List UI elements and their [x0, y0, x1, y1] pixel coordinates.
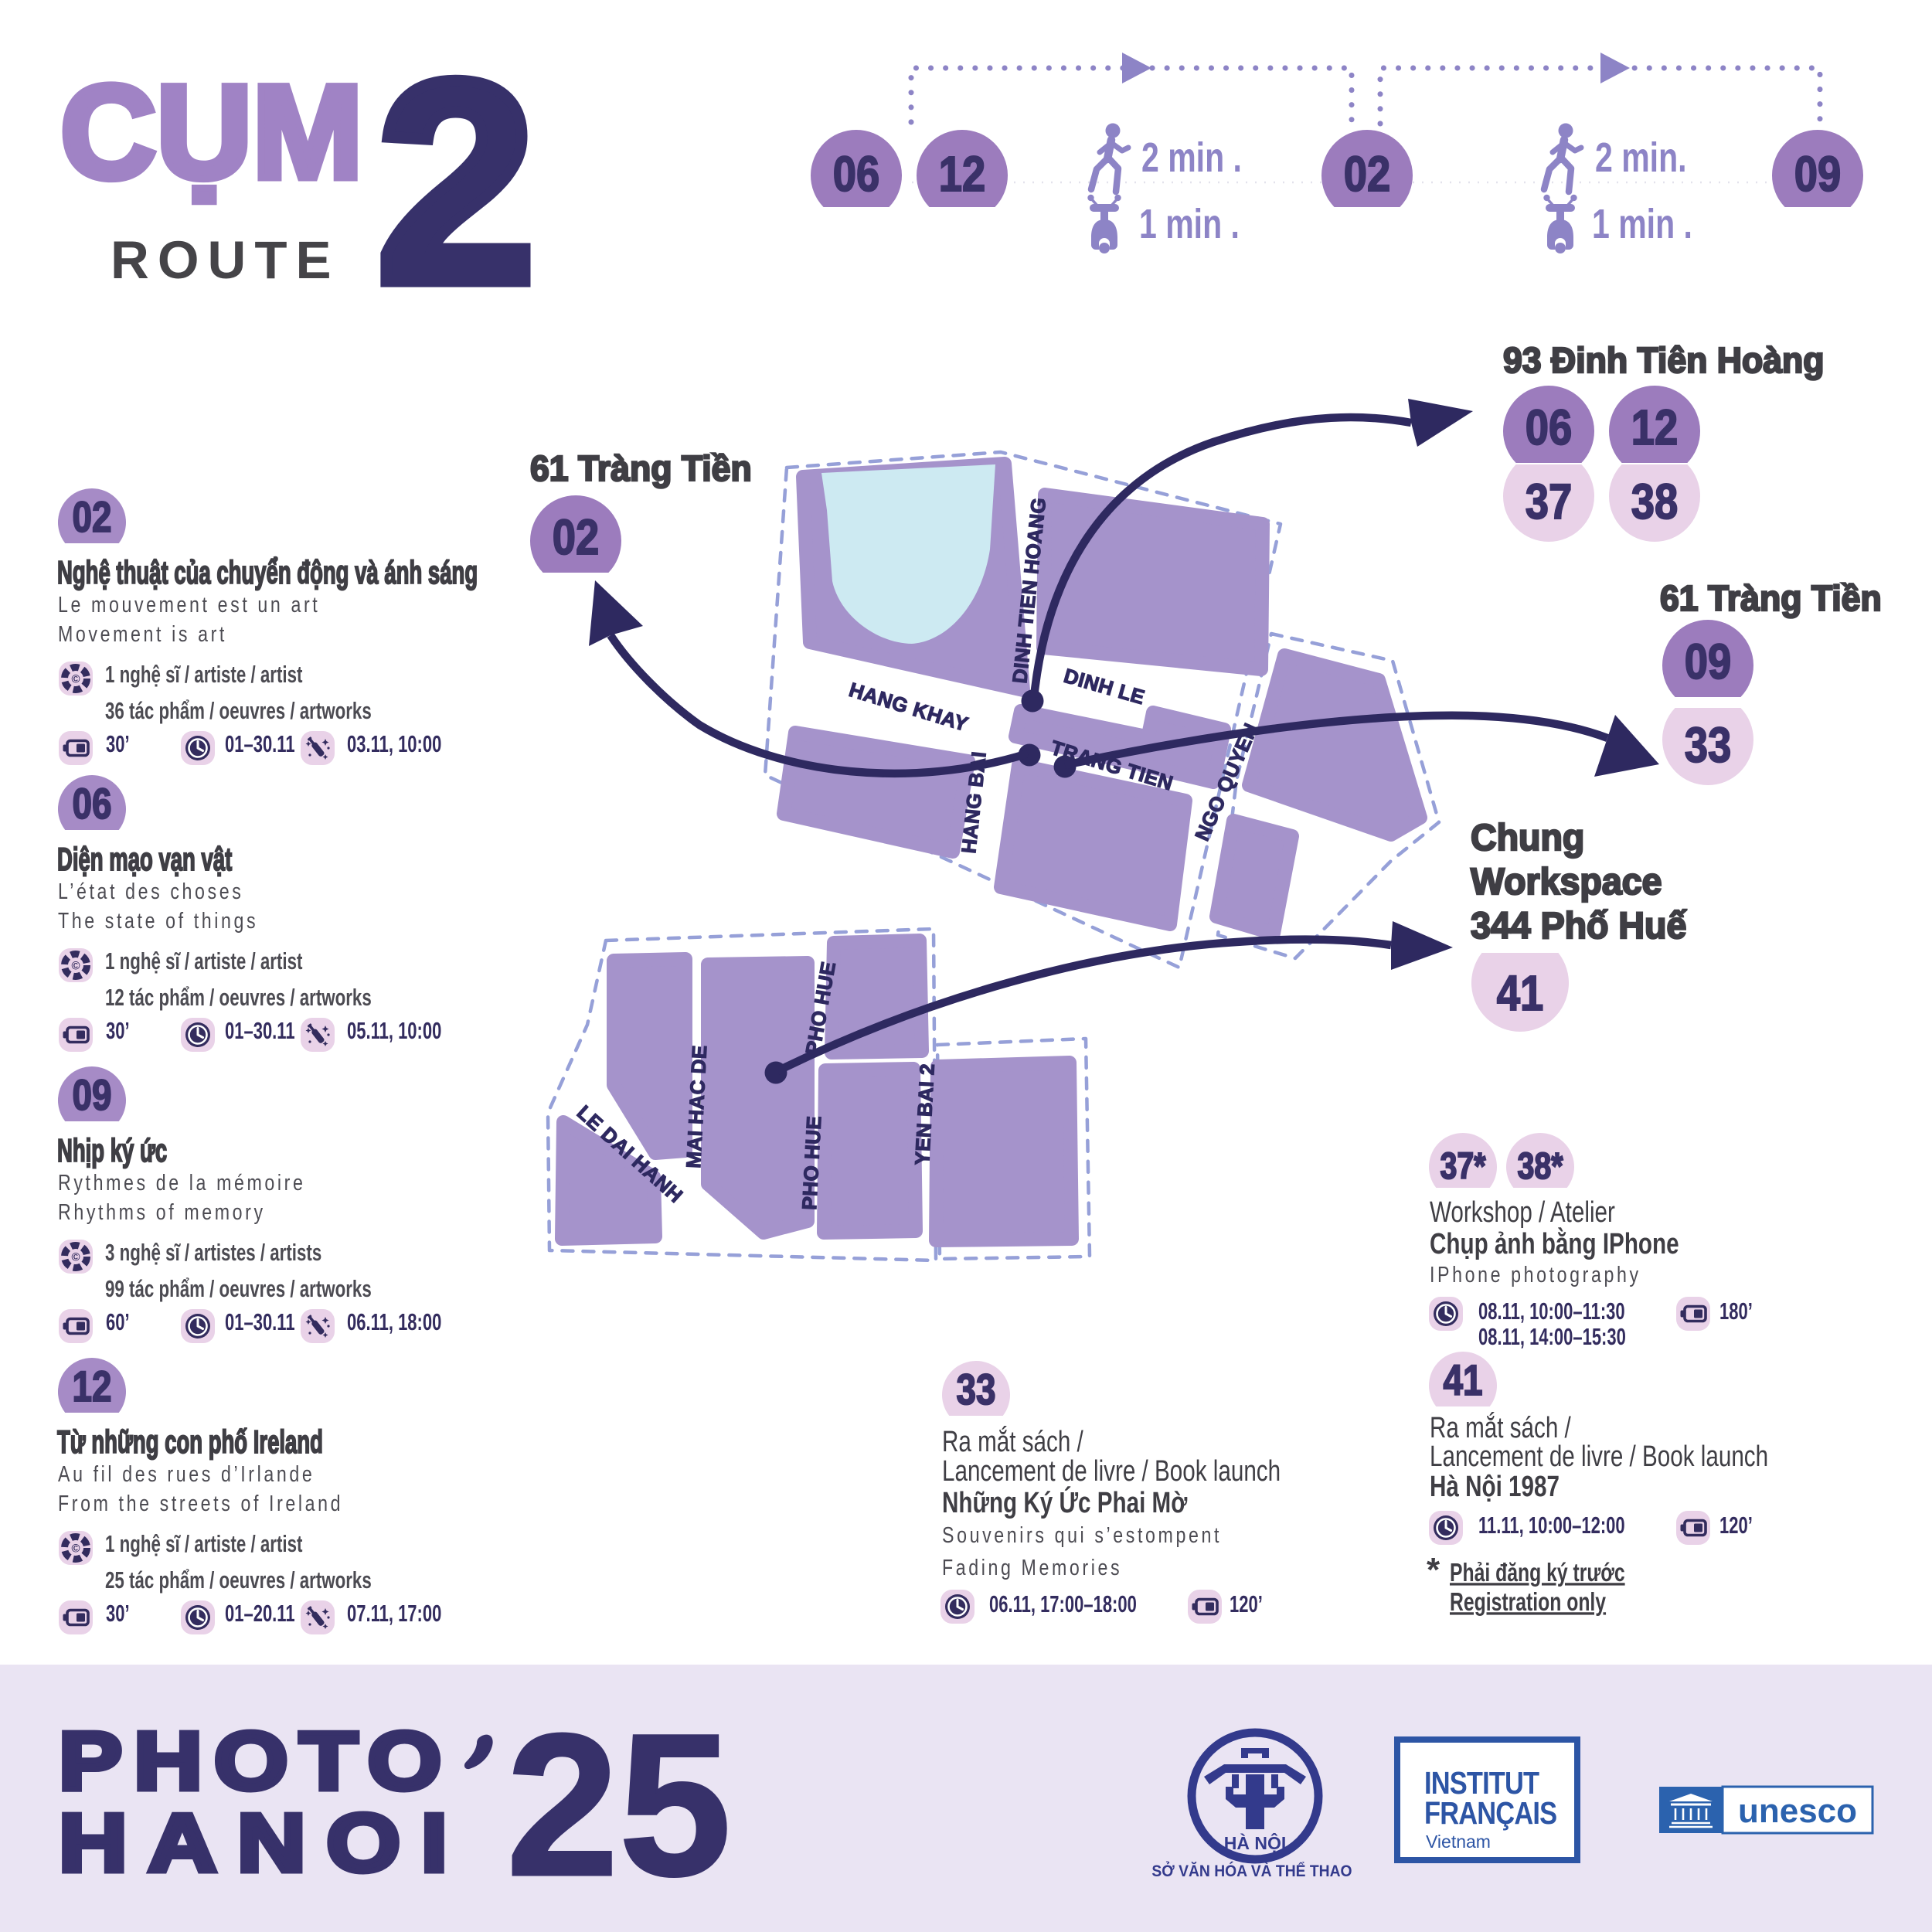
- svg-text:30’: 30’: [106, 730, 130, 757]
- svg-text:Ra mắt sách /: Ra mắt sách /: [942, 1426, 1083, 1458]
- svg-text:ROUTE: ROUTE: [111, 230, 340, 290]
- svg-text:61 Tràng Tiền: 61 Tràng Tiền: [530, 448, 752, 488]
- svg-text:Fading Memories: Fading Memories: [942, 1554, 1122, 1580]
- svg-text:30’: 30’: [106, 1017, 130, 1044]
- svg-text:41: 41: [1497, 965, 1543, 1021]
- svg-text:33: 33: [1685, 717, 1731, 773]
- svg-text:Movement is art: Movement is art: [58, 621, 227, 646]
- svg-text:07.11, 17:00: 07.11, 17:00: [347, 1600, 441, 1627]
- svg-text:37*: 37*: [1440, 1145, 1486, 1187]
- svg-text:06: 06: [72, 780, 111, 828]
- svg-text:Workshop / Atelier: Workshop / Atelier: [1430, 1196, 1615, 1229]
- svg-text:The state of things: The state of things: [58, 907, 258, 933]
- svg-text:08.11, 10:00–11:30: 08.11, 10:00–11:30: [1478, 1298, 1625, 1325]
- svg-text:120’: 120’: [1719, 1512, 1753, 1539]
- svg-text:01–30.11: 01–30.11: [225, 1017, 295, 1044]
- svg-text:06.11, 18:00: 06.11, 18:00: [347, 1308, 441, 1335]
- svg-text:12: 12: [1631, 400, 1678, 455]
- svg-text:Những Ký Ức Phai Mờ: Những Ký Ức Phai Mờ: [942, 1487, 1188, 1519]
- svg-text:SỞ VĂN HÓA VÀ THỂ THAO: SỞ VĂN HÓA VÀ THỂ THAO: [1151, 1861, 1352, 1880]
- svg-text:Vietnam: Vietnam: [1426, 1832, 1491, 1852]
- svg-text:From the streets of Ireland: From the streets of Ireland: [58, 1490, 343, 1515]
- svg-text:12: 12: [939, 146, 985, 202]
- svg-text:3 nghệ sĩ / artistes / artists: 3 nghệ sĩ / artistes / artists: [105, 1239, 321, 1265]
- svg-text:Chung: Chung: [1471, 817, 1584, 859]
- svg-text:33: 33: [956, 1366, 995, 1413]
- svg-text:unesco: unesco: [1738, 1792, 1857, 1830]
- svg-text:DINH LE: DINH LE: [1061, 664, 1148, 709]
- svg-text:344 Phố Huế: 344 Phố Huế: [1471, 905, 1687, 947]
- svg-text:01–30.11: 01–30.11: [225, 1308, 295, 1335]
- svg-text:IPhone photography: IPhone photography: [1430, 1261, 1641, 1287]
- svg-text:37: 37: [1526, 474, 1572, 529]
- svg-text:PHOTO: PHOTO: [59, 1716, 453, 1807]
- svg-text:PHO HUE: PHO HUE: [798, 1115, 825, 1210]
- svg-text:01–30.11: 01–30.11: [225, 730, 295, 757]
- svg-text:Souvenirs qui s’estompent: Souvenirs qui s’estompent: [942, 1522, 1222, 1547]
- svg-text:Chụp ảnh bằng IPhone: Chụp ảnh bằng IPhone: [1430, 1228, 1679, 1260]
- svg-text:Diện mạo vạn vật: Diện mạo vạn vật: [57, 841, 232, 877]
- svg-text:HANOI: HANOI: [59, 1798, 468, 1889]
- svg-text:08.11, 14:00–15:30: 08.11, 14:00–15:30: [1478, 1323, 1626, 1350]
- svg-text:1 min .: 1 min .: [1139, 202, 1240, 248]
- svg-text:12 tác phẩm / oeuvres / artwor: 12 tác phẩm / oeuvres / artworks: [105, 984, 372, 1010]
- svg-text:Le mouvement est un art: Le mouvement est un art: [58, 591, 320, 617]
- svg-text:Lancement de livre / Book laun: Lancement de livre / Book launch: [942, 1455, 1281, 1488]
- svg-text:01–20.11: 01–20.11: [225, 1600, 295, 1627]
- svg-text:38: 38: [1631, 474, 1678, 529]
- svg-text:02: 02: [553, 509, 599, 565]
- svg-text:HÀ NỘI: HÀ NỘI: [1224, 1832, 1287, 1853]
- svg-text:Registration only: Registration only: [1450, 1589, 1607, 1617]
- svg-text:Nhịp ký ức: Nhịp ký ức: [57, 1132, 167, 1168]
- svg-text:2: 2: [376, 21, 536, 342]
- svg-text:05.11, 10:00: 05.11, 10:00: [347, 1017, 441, 1044]
- svg-text:93 Đinh Tiên Hoàng: 93 Đinh Tiên Hoàng: [1503, 340, 1825, 380]
- svg-text:09: 09: [1794, 146, 1841, 202]
- svg-text:Nghệ thuật của chuyển động và: Nghệ thuật của chuyển động và ánh sáng: [57, 554, 478, 590]
- svg-text:CỤM: CỤM: [60, 58, 363, 206]
- svg-text:25: 25: [506, 1692, 731, 1918]
- svg-text:99 tác phẩm / oeuvres / artwor: 99 tác phẩm / oeuvres / artworks: [105, 1275, 372, 1301]
- svg-text:Lancement de livre / Book laun: Lancement de livre / Book launch: [1430, 1440, 1768, 1473]
- svg-text:11.11, 10:00–12:00: 11.11, 10:00–12:00: [1478, 1512, 1625, 1539]
- svg-text:Phải đăng ký trước: Phải đăng ký trước: [1450, 1560, 1625, 1587]
- svg-text:38*: 38*: [1517, 1145, 1563, 1187]
- svg-text:06: 06: [833, 146, 879, 202]
- svg-text:1 nghệ sĩ / artiste / artist: 1 nghệ sĩ / artiste / artist: [105, 661, 302, 687]
- svg-text:180’: 180’: [1719, 1298, 1753, 1325]
- svg-text:02: 02: [72, 493, 111, 541]
- svg-text:1 nghệ sĩ / artiste / artist: 1 nghệ sĩ / artiste / artist: [105, 1530, 302, 1556]
- svg-text:25 tác phẩm / oeuvres / artwor: 25 tác phẩm / oeuvres / artworks: [105, 1566, 372, 1593]
- svg-text:L’état des choses: L’état des choses: [58, 878, 243, 903]
- svg-text:1 nghệ sĩ / artiste / artist: 1 nghệ sĩ / artiste / artist: [105, 947, 302, 974]
- svg-text:Từ những con phố Ireland: Từ những con phố Ireland: [57, 1423, 323, 1460]
- svg-text:2 min.: 2 min.: [1595, 135, 1687, 182]
- svg-text:12: 12: [72, 1362, 111, 1410]
- svg-text:02: 02: [1344, 146, 1390, 202]
- svg-text:03.11, 10:00: 03.11, 10:00: [347, 730, 441, 757]
- svg-text:Rythmes de la mémoire: Rythmes de la mémoire: [58, 1169, 305, 1195]
- svg-text:*: *: [1427, 1551, 1440, 1589]
- svg-text:FRANÇAIS: FRANÇAIS: [1424, 1796, 1556, 1831]
- svg-text:Au fil des rues d’Irlande: Au fil des rues d’Irlande: [58, 1461, 315, 1486]
- svg-text:Rhythms of memory: Rhythms of memory: [58, 1199, 266, 1224]
- svg-text:09: 09: [1685, 634, 1731, 689]
- svg-text:30’: 30’: [106, 1600, 130, 1627]
- svg-text:HANG KHAY: HANG KHAY: [846, 678, 971, 736]
- svg-text:60’: 60’: [106, 1308, 130, 1335]
- svg-text:2 min .: 2 min .: [1141, 135, 1242, 182]
- svg-text:120’: 120’: [1230, 1590, 1263, 1617]
- svg-text:Workspace: Workspace: [1471, 861, 1662, 903]
- svg-text:06: 06: [1526, 400, 1572, 455]
- svg-text:Hà Nội 1987: Hà Nội 1987: [1430, 1471, 1560, 1503]
- svg-text:36 tác phẩm / oeuvres / artwor: 36 tác phẩm / oeuvres / artworks: [105, 697, 372, 723]
- svg-text:06.11, 17:00–18:00: 06.11, 17:00–18:00: [989, 1590, 1137, 1617]
- svg-text:41: 41: [1443, 1356, 1482, 1404]
- svg-text:09: 09: [72, 1071, 111, 1119]
- svg-text:1 min .: 1 min .: [1592, 202, 1692, 248]
- svg-text:61 Tràng Tiền: 61 Tràng Tiền: [1660, 578, 1882, 618]
